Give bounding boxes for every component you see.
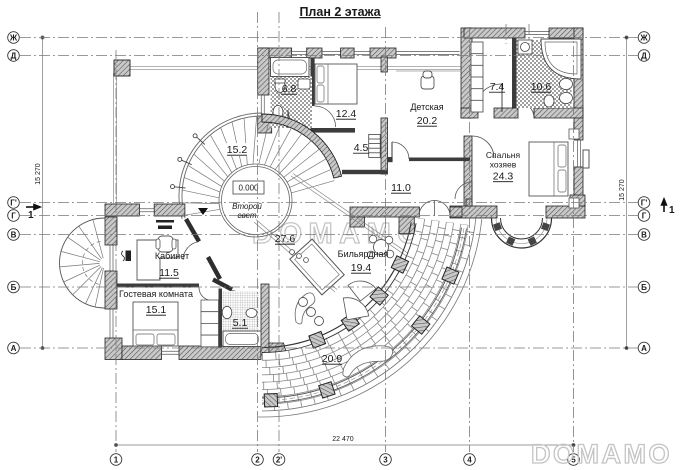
svg-text:1: 1 (669, 205, 675, 216)
svg-text:А: А (11, 344, 17, 353)
svg-text:3: 3 (383, 455, 388, 464)
svg-text:Г: Г (11, 211, 16, 220)
svg-text:15.2: 15.2 (227, 144, 248, 156)
svg-text:Бильярдная: Бильярдная (338, 249, 389, 259)
svg-text:Ж: Ж (639, 33, 648, 42)
svg-text:Спальня: Спальня (486, 150, 521, 160)
svg-text:10.6: 10.6 (531, 81, 552, 93)
svg-text:27.6: 27.6 (275, 233, 296, 245)
svg-text:15.1: 15.1 (146, 304, 167, 316)
svg-text:Д: Д (11, 51, 17, 60)
svg-text:В: В (11, 230, 17, 239)
svg-text:12.4: 12.4 (336, 108, 357, 120)
svg-text:А: А (641, 344, 647, 353)
svg-text:хозяев: хозяев (490, 160, 517, 170)
svg-text:19.4: 19.4 (351, 262, 372, 274)
svg-text:4: 4 (467, 455, 472, 464)
svg-text:Г: Г (642, 211, 647, 220)
svg-text:1: 1 (114, 455, 119, 464)
svg-text:24.3: 24.3 (493, 171, 514, 183)
svg-text:DOMAMO: DOMAMO (531, 439, 672, 469)
svg-text:Детская: Детская (410, 102, 443, 112)
svg-text:15 270: 15 270 (619, 179, 626, 201)
svg-text:Д: Д (641, 51, 647, 60)
svg-text:6.8: 6.8 (282, 83, 297, 95)
svg-text:В: В (641, 230, 647, 239)
svg-text:11.5: 11.5 (159, 267, 179, 279)
svg-text:Ж: Ж (9, 33, 18, 42)
svg-text:Б: Б (641, 283, 647, 292)
svg-text:0.000: 0.000 (238, 184, 259, 193)
svg-text:2': 2' (276, 455, 282, 464)
svg-text:Г': Г' (641, 198, 648, 207)
svg-text:15 270: 15 270 (35, 163, 42, 185)
svg-text:Кабинет: Кабинет (155, 251, 189, 261)
svg-text:20.9: 20.9 (322, 353, 343, 365)
svg-text:2: 2 (255, 455, 260, 464)
svg-text:7.4: 7.4 (490, 81, 505, 93)
svg-text:Г': Г' (10, 198, 17, 207)
svg-text:План 2 этажа: План 2 этажа (299, 5, 381, 19)
svg-text:4.5: 4.5 (354, 142, 369, 154)
svg-text:Б: Б (11, 283, 17, 292)
svg-text:22 470: 22 470 (332, 436, 354, 443)
svg-text:11.0: 11.0 (391, 182, 411, 194)
svg-text:5.1: 5.1 (233, 317, 248, 329)
svg-text:20.2: 20.2 (417, 115, 438, 127)
svg-text:Гостевая комната: Гостевая комната (119, 289, 193, 299)
